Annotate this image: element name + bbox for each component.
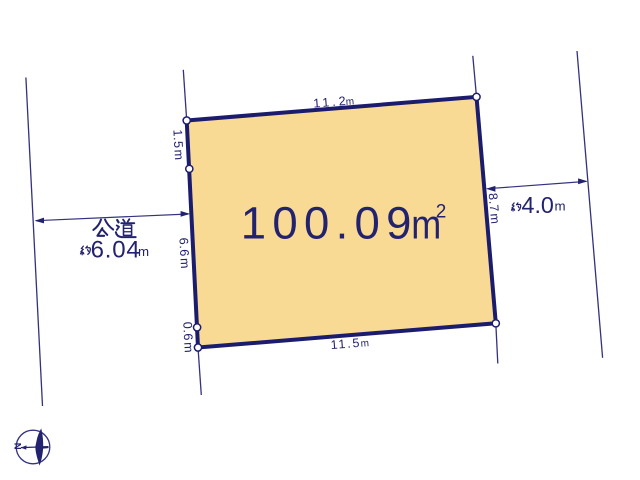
svg-text:m: m [360, 338, 369, 350]
svg-text:11.5: 11.5 [330, 336, 362, 352]
svg-text:11.2: 11.2 [313, 94, 349, 111]
svg-text:m: m [487, 213, 502, 225]
svg-text:4.0: 4.0 [522, 192, 554, 218]
svg-text:m: m [171, 149, 186, 160]
svg-text:m: m [181, 342, 196, 353]
svg-text:8.7: 8.7 [486, 192, 502, 212]
svg-text:6.04: 6.04 [91, 237, 141, 264]
svg-text:m: m [345, 96, 354, 108]
svg-text:2: 2 [436, 202, 447, 223]
svg-text:m: m [138, 244, 149, 259]
svg-text:1.5: 1.5 [170, 129, 185, 149]
svg-text:m: m [177, 258, 192, 269]
svg-text:m: m [555, 199, 566, 214]
svg-text:N: N [13, 443, 24, 450]
svg-text:6.6: 6.6 [176, 237, 191, 257]
svg-text:0.6: 0.6 [180, 321, 195, 341]
